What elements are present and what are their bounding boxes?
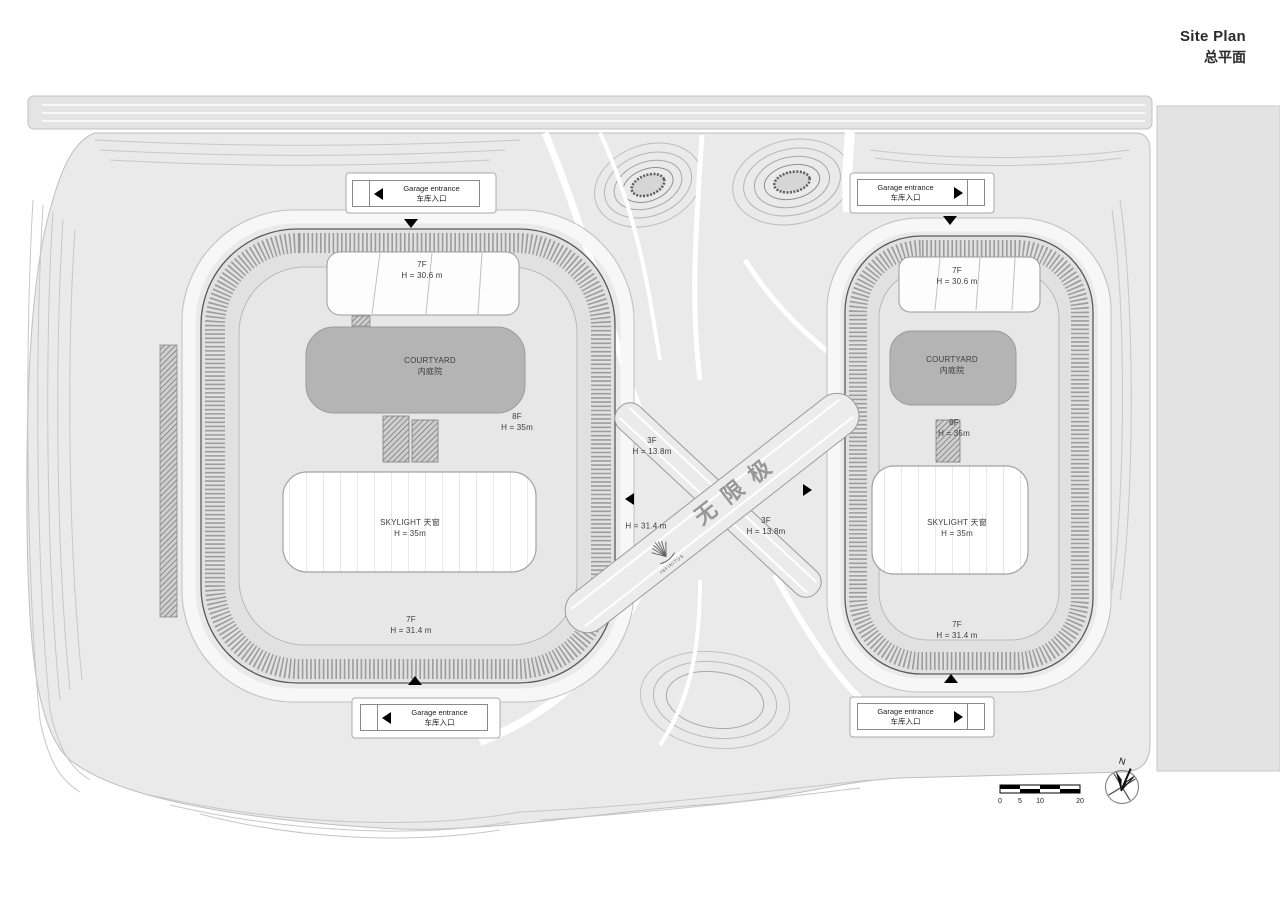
right-rear-block-label: 8F H = 35m [938, 418, 970, 440]
height-text: H = 35m [927, 529, 987, 540]
height-text: H = 13.8m [747, 527, 786, 538]
height-text: H = 30.6 m [936, 277, 977, 288]
core [412, 420, 438, 462]
garage-label-en: Garage entrance [858, 707, 953, 717]
bridge-upper-label: 3F H = 13.8m [633, 436, 672, 458]
courtyard-text-zh: 内庭院 [404, 367, 456, 378]
garage-label-zh: 车库入口 [858, 717, 953, 727]
height-text: H = 13.8m [633, 447, 672, 458]
floors-text: 7F [390, 615, 431, 626]
garage-entrance-top-left: Garage entrance 车库入口 [352, 180, 480, 207]
floors-text: 8F [501, 412, 533, 423]
garage-cell [361, 705, 378, 730]
scale-tick-5: 5 [1018, 798, 1022, 805]
courtyard-text-en: COURTYARD [926, 355, 978, 366]
scale-tick-10: 10 [1036, 798, 1044, 805]
height-text: H = 30.6 m [401, 271, 442, 282]
garage-label-en: Garage entrance [392, 708, 487, 718]
arrow-right-icon [954, 187, 963, 199]
arrow-right-icon [954, 711, 963, 723]
scale-tick-0: 0 [998, 798, 1002, 805]
adjacent-parcel [1157, 106, 1280, 771]
garage-cell [967, 704, 984, 729]
entrance-marker-right-icon [803, 484, 812, 496]
garage-label-zh: 车库入口 [384, 194, 479, 204]
floors-text: 3F [633, 436, 672, 447]
entrance-marker-down-icon [404, 219, 418, 228]
right-skylight-label: SKYLIGHT 天窗 H = 35m [927, 518, 987, 540]
floors-text: 3F [747, 516, 786, 527]
height-text: H = 31.4 m [390, 626, 431, 637]
drawing-title-en: Site Plan [1180, 28, 1246, 45]
skylight-text: SKYLIGHT 天窗 [380, 518, 440, 529]
arrow-left-icon [382, 712, 391, 724]
garage-label-en: Garage entrance [384, 184, 479, 194]
garage-entrance-label: Garage entrance 车库入口 [384, 184, 479, 204]
height-text: H = 31.4 m [625, 522, 666, 533]
left-skylight-label: SKYLIGHT 天窗 H = 35m [380, 518, 440, 540]
drawing-title: Site Plan 总平面 [1180, 28, 1246, 67]
entrance-marker-up-icon [944, 674, 958, 683]
garage-entrance-label: Garage entrance 车库入口 [858, 183, 953, 203]
floors-text: 8F [938, 418, 970, 429]
left-courtyard-label: COURTYARD 内庭院 [404, 356, 456, 378]
left-rear-block-label: 8F H = 35m [501, 412, 533, 434]
right-roof-bar-label: 7F H = 30.6 m [936, 266, 977, 288]
right-building [845, 236, 1093, 674]
left-roof-bar-label: 7F H = 30.6 m [401, 260, 442, 282]
right-front-block-label: 7F H = 31.4 m [936, 620, 977, 642]
courtyard-text-zh: 内庭院 [926, 366, 978, 377]
site-plan-page: INFINITUS 无限极 0 5 10 20 N Sit [0, 0, 1280, 904]
courtyard-text-en: COURTYARD [404, 356, 456, 367]
garage-entrance-label: Garage entrance 车库入口 [858, 707, 953, 727]
core [383, 416, 409, 462]
garage-cell [353, 181, 370, 206]
right-courtyard-label: COURTYARD 内庭院 [926, 355, 978, 377]
floors-text: 7F [936, 620, 977, 631]
walkway-height-label: H = 31.4 m [625, 522, 666, 533]
height-text: H = 35m [501, 423, 533, 434]
height-text: H = 35m [380, 529, 440, 540]
skylight-text: SKYLIGHT 天窗 [927, 518, 987, 529]
height-text: H = 31.4 m [936, 631, 977, 642]
left-front-block-label: 7F H = 31.4 m [390, 615, 431, 637]
garage-label-zh: 车库入口 [858, 193, 953, 203]
garage-cell [967, 180, 984, 205]
garage-entrance-bottom-left: Garage entrance 车库入口 [360, 704, 488, 731]
entrance-marker-down-icon [943, 216, 957, 225]
ramp-wall [160, 345, 177, 617]
height-text: H = 35m [938, 429, 970, 440]
scale-bar: 0 5 10 20 [998, 785, 1084, 805]
garage-entrance-label: Garage entrance 车库入口 [392, 708, 487, 728]
scale-tick-20: 20 [1076, 798, 1084, 805]
floors-text: 7F [401, 260, 442, 271]
floors-text: 7F [936, 266, 977, 277]
garage-label-zh: 车库入口 [392, 718, 487, 728]
top-road [28, 96, 1152, 129]
arrow-left-icon [374, 188, 383, 200]
garage-label-en: Garage entrance [858, 183, 953, 193]
entrance-marker-left-icon [625, 493, 634, 505]
bridge-lower-label: 3F H = 13.8m [747, 516, 786, 538]
drawing-title-zh: 总平面 [1180, 47, 1246, 67]
garage-entrance-bottom-right: Garage entrance 车库入口 [857, 703, 985, 730]
entrance-marker-up-icon [408, 676, 422, 685]
garage-entrance-top-right: Garage entrance 车库入口 [857, 179, 985, 206]
